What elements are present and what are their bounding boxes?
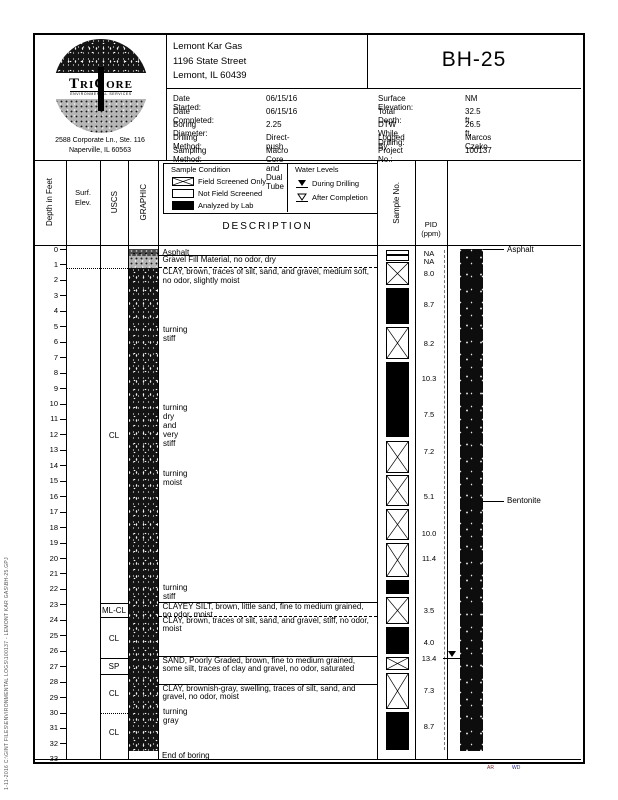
depth-number: 25 <box>33 631 58 640</box>
sample-box sample-field <box>386 509 409 540</box>
uscs-column-label: USCS <box>110 191 119 213</box>
pid-inner-dashed-line <box>444 250 445 750</box>
depth-tick <box>60 357 66 358</box>
legend-item-lab: Analyzed by Lab <box>172 201 253 210</box>
stratum-description: CLAY, brownish-gray, swelling, traces of… <box>159 685 377 751</box>
uscs-label: SP <box>109 662 120 671</box>
depth-number: 14 <box>33 461 58 470</box>
legend-label: After Completion <box>312 193 368 202</box>
stratum-note: turning stiff <box>163 583 187 601</box>
not-field-screened-icon <box>172 189 194 198</box>
depth-tick <box>60 527 66 528</box>
depth-tick <box>60 465 66 466</box>
column-header-bottom-line <box>33 245 581 246</box>
legend-item-after-completion: After Completion <box>296 193 368 202</box>
column-header-pid: PID (ppm) <box>415 220 447 238</box>
sample-box sample-field <box>386 441 409 473</box>
pid-value: 8.7 <box>414 722 444 731</box>
well-label: Asphalt <box>507 245 534 254</box>
legend-divider <box>287 163 288 212</box>
pid-value: 4.0 <box>414 638 444 647</box>
depth-number: 26 <box>33 646 58 655</box>
client-block: Lemont Kar Gas 1196 State Street Lemont,… <box>173 40 247 84</box>
uscs-layer: CL <box>100 674 128 713</box>
pid-value: 7.5 <box>414 410 444 419</box>
detail-value: 06/15/16 <box>266 107 297 116</box>
pid-value: 5.1 <box>414 492 444 501</box>
depth-tick <box>60 666 66 667</box>
uscs-label: CL <box>109 634 119 643</box>
analyzed-by-lab-icon <box>172 201 194 210</box>
depth-tick <box>60 404 66 405</box>
well-column <box>460 249 483 751</box>
depth-number: 0 <box>33 245 58 254</box>
pid-value: 8.0 <box>414 269 444 278</box>
pid-value: 11.4 <box>414 554 444 563</box>
graphic-band <box>129 256 158 268</box>
depth-number: 22 <box>33 584 58 593</box>
depth-number: 27 <box>33 662 58 671</box>
legend-item-not-screened: Not Field Screened <box>172 189 262 198</box>
logo-t-stem <box>98 67 104 111</box>
field-screened-icon <box>172 177 194 186</box>
depth-number: 8 <box>33 368 58 377</box>
column-header-depth: Depth in Feet <box>33 160 66 245</box>
depth-tick <box>60 264 66 265</box>
depth-number: 29 <box>33 693 58 702</box>
depth-number: 31 <box>33 723 58 732</box>
legend-label: Analyzed by Lab <box>198 201 253 210</box>
detail-value: 100137 <box>465 146 492 155</box>
column-header-graphic: GRAPHIC <box>128 160 158 245</box>
legend-water-levels-title: Water Levels <box>295 165 339 174</box>
depth-tick <box>60 249 66 250</box>
depth-tick <box>60 295 66 296</box>
client-name: Lemont Kar Gas <box>173 40 247 55</box>
depth-number: 4 <box>33 306 58 315</box>
sample-box sample-field <box>386 475 409 506</box>
column-header-description: DESCRIPTION <box>158 221 377 232</box>
boring-id: BH-25 <box>367 48 581 72</box>
stratum-description: CLAY, brown, traces of silt, sand, and g… <box>159 617 377 657</box>
pid-value: 13.4 <box>414 654 444 663</box>
pid-value: 10.3 <box>414 374 444 383</box>
depth-tick <box>60 419 66 420</box>
boring-log-page: 1-11-2016 C:\GINT FILES\ENVIRONMENTAL LO… <box>0 0 618 800</box>
depth-number: 17 <box>33 507 58 516</box>
graphic-band <box>129 249 158 256</box>
column-line <box>447 160 448 759</box>
depth-number: 28 <box>33 677 58 686</box>
surf-label: Surf. <box>66 188 100 198</box>
depth-tick <box>60 635 66 636</box>
depth-tick <box>60 434 66 435</box>
well-label-leader <box>483 501 504 502</box>
pid-value: 10.0 <box>414 529 444 538</box>
legend-item-during-drilling: During Drilling <box>296 179 359 188</box>
stratum-description: CLAY, brown, traces of silt, sand, and g… <box>159 268 377 602</box>
depth-number: 13 <box>33 445 58 454</box>
sample-box sample-lab <box>386 580 409 594</box>
legend-item-field-screened: Field Screened Only <box>172 177 266 186</box>
depth-number: 10 <box>33 399 58 408</box>
depth-number: 33 <box>33 754 58 763</box>
pid-units-label: (ppm) <box>415 229 447 238</box>
depth-number: 15 <box>33 476 58 485</box>
depth-number: 20 <box>33 554 58 563</box>
end-of-boring-text: End of boring <box>162 751 210 760</box>
depth-tick <box>60 342 66 343</box>
depth-number: 3 <box>33 291 58 300</box>
depth-number: 9 <box>33 384 58 393</box>
sample-box sample-field <box>386 597 409 623</box>
uscs-layer: SP <box>100 658 128 673</box>
header-row-divider <box>166 88 581 89</box>
depth-number: 32 <box>33 739 58 748</box>
tricore-logo: TriCore ENVIRONMENTAL SERVICES <box>54 39 148 133</box>
depth-tick <box>60 682 66 683</box>
footer-mark-left: AR <box>487 765 494 771</box>
pid-value: 3.5 <box>414 606 444 615</box>
depth-tick <box>60 326 66 327</box>
detail-value: 06/15/16 <box>266 94 297 103</box>
water-level-icon <box>448 651 456 657</box>
column-line <box>66 160 67 759</box>
uscs-layer: ML-CL <box>100 603 128 617</box>
detail-value: 2.25 <box>266 120 282 129</box>
depth-tick <box>60 697 66 698</box>
sample-box sample-field <box>386 543 409 577</box>
depth-number: 2 <box>33 275 58 284</box>
depth-number: 24 <box>33 615 58 624</box>
depth-tick <box>60 589 66 590</box>
depth-column-label: Depth in Feet <box>45 178 54 226</box>
logo-address-line2: Naperville, IL 60563 <box>36 146 164 156</box>
elev-label: Elev. <box>66 198 100 208</box>
depth-tick <box>60 373 66 374</box>
well-label: Bentonite <box>507 496 541 505</box>
pid-value: 7.3 <box>414 686 444 695</box>
stratum-description: SAND, Poorly Graded, brown, fine to medi… <box>159 657 377 685</box>
legend-label: Field Screened Only <box>198 177 266 186</box>
uscs-label: CL <box>109 689 119 698</box>
depth-number: 6 <box>33 337 58 346</box>
column-header-uscs: USCS <box>100 160 128 245</box>
depth-tick <box>60 651 66 652</box>
depth-number: 16 <box>33 492 58 501</box>
depth-tick <box>60 620 66 621</box>
uscs-label: CL <box>109 728 119 737</box>
uscs-label: CL <box>109 431 119 440</box>
depth-number: 12 <box>33 430 58 439</box>
column-header-sample-no: Sample No. <box>377 160 415 245</box>
depth-tick <box>60 604 66 605</box>
sample-box sample-lab <box>386 712 409 750</box>
sample-box sample-lab <box>386 627 409 654</box>
depth-number: 30 <box>33 708 58 717</box>
column-line <box>377 160 378 759</box>
stratum-note: turning moist <box>163 469 187 487</box>
legend-label: Not Field Screened <box>198 189 262 198</box>
uscs-label: ML-CL <box>102 606 126 615</box>
pid-label: PID <box>415 220 447 229</box>
depth-tick <box>60 558 66 559</box>
uscs-layer: CL <box>100 617 128 659</box>
sample-box sample-empty <box>386 255 409 260</box>
water-after-completion-icon <box>296 193 308 202</box>
water-level-line <box>443 658 462 659</box>
depth-tick <box>60 573 66 574</box>
logo-address-line1: 2588 Corporate Ln., Ste. 116 <box>36 136 164 146</box>
footer-mark-right: WD <box>512 765 520 771</box>
depth-number: 19 <box>33 538 58 547</box>
sample-no-column-label: Sample No. <box>392 182 401 224</box>
depth-tick <box>60 743 66 744</box>
sample-box sample-lab <box>386 362 409 438</box>
stratum-note: turning gray <box>163 707 187 725</box>
pid-value: 8.2 <box>414 339 444 348</box>
uscs-layer: CL <box>100 268 128 602</box>
depth-tick <box>60 728 66 729</box>
legend-label: During Drilling <box>312 179 359 188</box>
sidebar-path: 1-11-2016 C:\GINT FILES\ENVIRONMENTAL LO… <box>4 390 10 790</box>
detail-value: NM <box>465 94 477 103</box>
pid-value: NA <box>414 257 444 266</box>
depth-number: 11 <box>33 414 58 423</box>
legend-sample-condition-title: Sample Condition <box>171 165 230 174</box>
pid-value: 7.2 <box>414 447 444 456</box>
depth-tick <box>60 543 66 544</box>
water-during-drilling-icon <box>296 179 308 188</box>
logo-address: 2588 Corporate Ln., Ste. 116 Naperville,… <box>36 136 164 155</box>
well-label-leader <box>483 249 504 250</box>
uscs-layer: CL <box>100 713 128 752</box>
depth-tick <box>60 512 66 513</box>
graphic-column-label: GRAPHIC <box>139 184 148 220</box>
sample-box sample-field <box>386 327 409 359</box>
depth-number: 23 <box>33 600 58 609</box>
column-header-surf-elev: Surf. Elev. <box>66 188 100 208</box>
depth-number: 7 <box>33 353 58 362</box>
table-bottom-line <box>33 759 581 760</box>
depth-number: 1 <box>33 260 58 269</box>
stratum-note: turning stiff <box>163 325 187 343</box>
client-street: 1196 State Street <box>173 55 247 70</box>
sample-box sample-lab <box>386 288 409 324</box>
depth-tick <box>60 496 66 497</box>
stratum-description: CLAYEY SILT, brown, little sand, fine to… <box>159 603 377 617</box>
sample-box sample-field <box>386 673 409 709</box>
depth-tick <box>60 759 66 760</box>
depth-number: 21 <box>33 569 58 578</box>
detail-label: Sampling Method: <box>173 146 206 164</box>
depth-number: 5 <box>33 322 58 331</box>
depth-tick <box>60 713 66 714</box>
stratum-note: turning dry and very stiff <box>163 403 187 448</box>
sample-box sample-field <box>386 657 409 670</box>
logo-cell-divider <box>166 33 167 160</box>
pid-value: 8.7 <box>414 300 444 309</box>
depth-tick <box>60 311 66 312</box>
graphic-band <box>129 268 158 751</box>
sample-box sample-field <box>386 262 409 285</box>
depth-tick <box>60 280 66 281</box>
depth-tick <box>60 450 66 451</box>
depth-tick <box>60 388 66 389</box>
client-city: Lemont, IL 60439 <box>173 69 247 84</box>
depth-tick <box>60 481 66 482</box>
depth-number: 18 <box>33 523 58 532</box>
